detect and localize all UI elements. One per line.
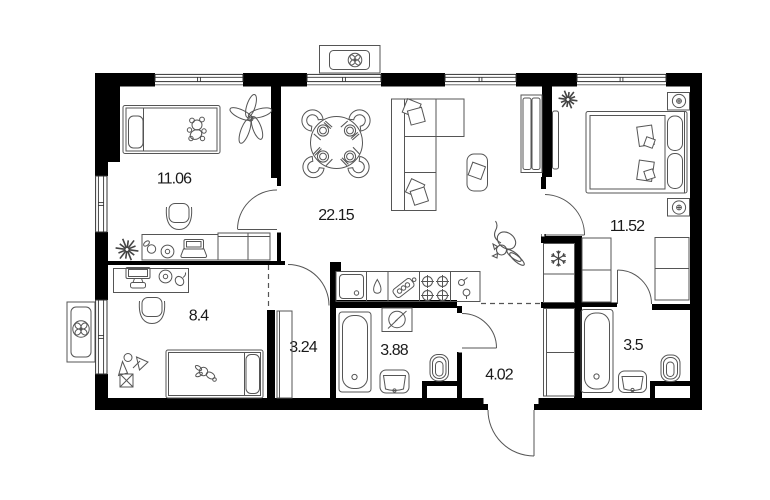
svg-text:4.02: 4.02	[485, 367, 514, 384]
svg-text:11.52: 11.52	[610, 218, 645, 235]
svg-text:11.06: 11.06	[157, 171, 192, 188]
svg-text:3.24: 3.24	[289, 339, 318, 356]
svg-text:22.15: 22.15	[318, 207, 355, 224]
svg-text:3.88: 3.88	[380, 342, 409, 359]
svg-text:8.4: 8.4	[189, 308, 210, 325]
svg-text:3.5: 3.5	[623, 337, 644, 354]
